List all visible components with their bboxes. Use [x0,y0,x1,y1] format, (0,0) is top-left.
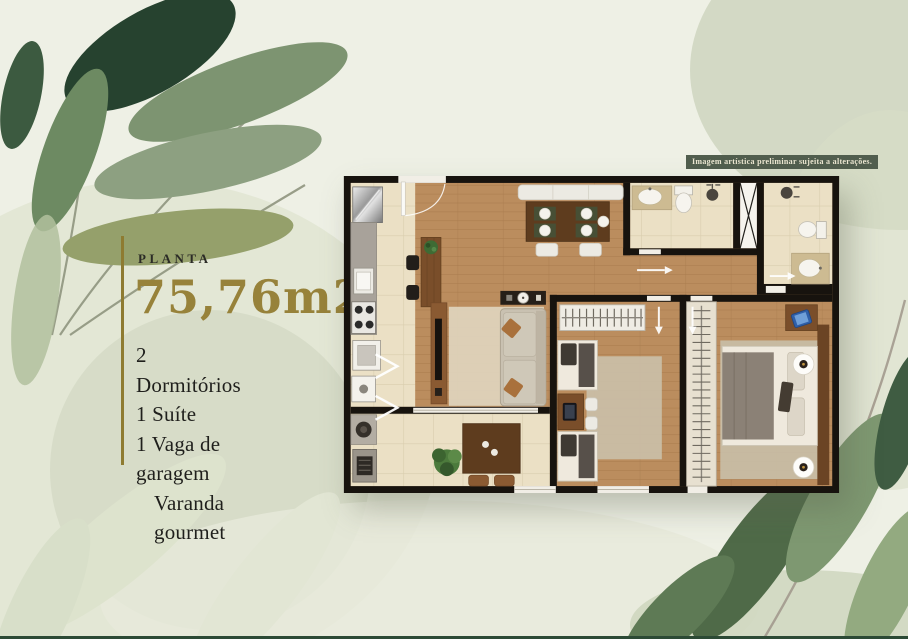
floor-plan-svg [343,176,840,493]
tv-rack [431,303,447,404]
feature-item-varanda: Varanda gourmet [136,489,241,548]
sofa [500,309,546,406]
floor-plan-illustration [343,176,840,493]
headboard-panel [817,325,829,485]
flyer-page: { "plan_info": { "eyebrow": "PLANTA", "a… [0,0,908,639]
balcony-chair [469,475,489,486]
bar-plant [424,240,438,254]
single-bed [558,340,598,390]
dining-chair [580,243,602,256]
feature-item-vaga: 1 Vaga de garagem [136,430,241,489]
plan-area-value: 75,76m2 [134,270,366,324]
gold-accent-line [121,236,124,465]
dining-bench [518,185,623,200]
feature-item-dormitorios: 2 Dormitórios [136,341,241,400]
washer-dryer [351,415,377,445]
wall-shelf-clock [500,291,546,305]
balcony-chair [494,475,514,486]
disclaimer-badge: Imagem artística preliminar sujeita a al… [686,155,878,169]
plan-eyebrow-label: PLANTA [138,251,211,267]
barbecue-grill [353,449,377,482]
dining-chair [536,243,558,256]
refrigerator [353,187,383,223]
single-bed [558,432,598,482]
suite-toilet [799,222,827,239]
stove [352,302,376,334]
wall-lamp [793,457,814,478]
toilet [675,186,693,213]
bar-stool [406,285,419,300]
kitchen-counter [351,223,377,335]
suite-desk-tablet [786,305,818,331]
feature-item-suite: 1 Suíte [136,400,241,430]
wall-lamp [793,354,814,375]
suite-sink-counter [792,253,830,284]
bar-stool [406,255,419,270]
bedroom-wardrobe [560,305,645,331]
feature-list: 2 Dormitórios 1 Suíte 1 Vaga de garagem … [136,341,241,548]
washing-machine [352,376,376,402]
